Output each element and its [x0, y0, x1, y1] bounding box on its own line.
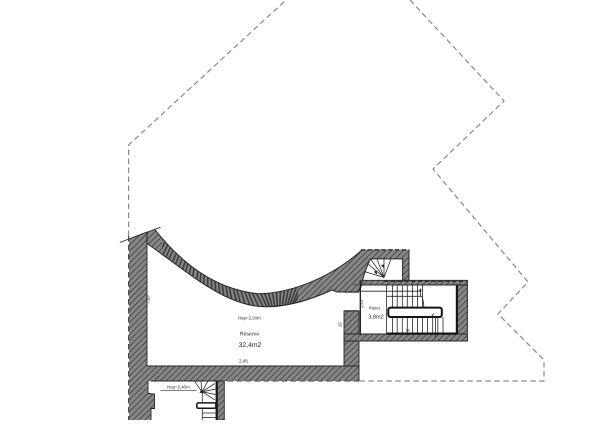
svg-text:32,4m2: 32,4m2: [239, 342, 262, 349]
svg-text:Hsp=2,50m: Hsp=2,50m: [238, 315, 261, 320]
svg-text:35: 35: [338, 322, 343, 327]
svg-text:18: 18: [405, 329, 409, 333]
svg-text:Hsp=2,40m: Hsp=2,40m: [167, 385, 190, 390]
svg-text:2,45: 2,45: [239, 359, 248, 364]
svg-text:2,93: 2,93: [145, 295, 150, 304]
svg-text:2,43: 2,43: [359, 299, 364, 308]
svg-text:Réserve: Réserve: [240, 331, 259, 337]
svg-text:Palier: Palier: [369, 306, 381, 311]
svg-text:3,8m2: 3,8m2: [368, 315, 384, 321]
